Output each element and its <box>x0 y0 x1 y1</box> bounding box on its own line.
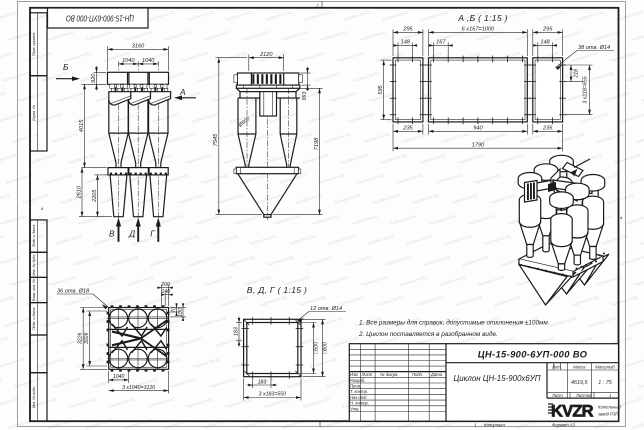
svg-text:kuzbass-inv.kz: kuzbass-inv.kz <box>445 233 472 246</box>
svg-text:Котельный: Котельный <box>598 405 621 410</box>
svg-text:kuzbass-inv.kz: kuzbass-inv.kz <box>265 9 292 22</box>
svg-text:kuzbass-inv.kz: kuzbass-inv.kz <box>429 213 456 226</box>
svg-text:kuzbass-inv.kz: kuzbass-inv.kz <box>439 274 466 287</box>
svg-text:kuzbass-inv.kz: kuzbass-inv.kz <box>215 335 242 348</box>
svg-text:4619,5: 4619,5 <box>571 380 588 386</box>
svg-text:kuzbass-inv.kz: kuzbass-inv.kz <box>69 396 96 409</box>
svg-text:kuzbass-inv.kz: kuzbass-inv.kz <box>47 29 74 42</box>
svg-text:kuzbass-inv.kz: kuzbass-inv.kz <box>451 192 478 205</box>
svg-text:kuzbass-inv.kz: kuzbass-inv.kz <box>86 29 113 42</box>
svg-text:kuzbass-inv.kz: kuzbass-inv.kz <box>246 131 273 144</box>
svg-text:3160: 3160 <box>132 44 145 50</box>
svg-text:kuzbass-inv.kz: kuzbass-inv.kz <box>108 396 135 409</box>
svg-text:7545: 7545 <box>213 133 219 146</box>
svg-text:2610: 2610 <box>76 185 82 199</box>
svg-text:kuzbass-inv.kz: kuzbass-inv.kz <box>320 29 347 42</box>
svg-text:Б: Б <box>63 62 69 72</box>
svg-text:kuzbass-inv.kz: kuzbass-inv.kz <box>365 0 392 1</box>
svg-text:kuzbass-inv.kz: kuzbass-inv.kz <box>560 0 587 1</box>
svg-text:kuzbass-inv.kz: kuzbass-inv.kz <box>640 233 644 246</box>
svg-text:kuzbass-inv.kz: kuzbass-inv.kz <box>250 233 277 246</box>
svg-text:kuzbass-inv.kz: kuzbass-inv.kz <box>406 233 433 246</box>
svg-text:200: 200 <box>160 282 170 288</box>
svg-text:kuzbass-inv.kz: kuzbass-inv.kz <box>55 233 82 246</box>
svg-text:kuzbass-inv.kz: kuzbass-inv.kz <box>168 131 195 144</box>
svg-text:kuzbass-inv.kz: kuzbass-inv.kz <box>357 172 384 185</box>
svg-text:kuzbass-inv.kz: kuzbass-inv.kz <box>164 29 191 42</box>
svg-text:kuzbass-inv.kz: kuzbass-inv.kz <box>581 111 608 124</box>
svg-text:295: 295 <box>402 27 413 33</box>
svg-text:kuzbass-inv.kz: kuzbass-inv.kz <box>304 9 331 22</box>
svg-text:kuzbass-inv.kz: kuzbass-inv.kz <box>361 274 388 287</box>
svg-text:kuzbass-inv.kz: kuzbass-inv.kz <box>203 417 230 430</box>
svg-text:kuzbass-inv.kz: kuzbass-inv.kz <box>82 315 109 328</box>
svg-text:kuzbass-inv.kz: kuzbass-inv.kz <box>207 131 234 144</box>
svg-text:kuzbass-inv.kz: kuzbass-inv.kz <box>195 213 222 226</box>
svg-text:kuzbass-inv.kz: kuzbass-inv.kz <box>0 294 14 307</box>
svg-text:4015: 4015 <box>79 119 85 132</box>
svg-text:kuzbass-inv.kz: kuzbass-inv.kz <box>359 29 386 42</box>
svg-text:kuzbass-inv.kz: kuzbass-inv.kz <box>363 131 390 144</box>
svg-text:2: 2 <box>316 4 319 8</box>
svg-text:920: 920 <box>91 73 97 83</box>
svg-text:kuzbass-inv.kz: kuzbass-inv.kz <box>0 396 18 409</box>
svg-text:kuzbass-inv.kz: kuzbass-inv.kz <box>172 233 199 246</box>
svg-text:kuzbass-inv.kz: kuzbass-inv.kz <box>287 0 314 1</box>
svg-text:kuzbass-inv.kz: kuzbass-inv.kz <box>380 152 407 165</box>
svg-text:Утв.: Утв. <box>350 406 360 411</box>
svg-text:kuzbass-inv.kz: kuzbass-inv.kz <box>468 213 495 226</box>
svg-text:kuzbass-inv.kz: kuzbass-inv.kz <box>572 294 599 307</box>
svg-text:kuzbass-inv.kz: kuzbass-inv.kz <box>166 274 193 287</box>
svg-text:kuzbass-inv.kz: kuzbass-inv.kz <box>0 9 19 22</box>
svg-text:kuzbass-inv.kz: kuzbass-inv.kz <box>29 152 56 165</box>
svg-text:kuzbass-inv.kz: kuzbass-inv.kz <box>65 294 92 307</box>
svg-text:А: А <box>179 87 186 97</box>
svg-text:завод РЗП: завод РЗП <box>597 412 619 417</box>
svg-text:kuzbass-inv.kz: kuzbass-inv.kz <box>435 172 462 185</box>
svg-text:kuzbass-inv.kz: kuzbass-inv.kz <box>607 192 634 205</box>
svg-text:kuzbass-inv.kz: kuzbass-inv.kz <box>193 356 220 369</box>
svg-text:kuzbass-inv.kz: kuzbass-inv.kz <box>22 192 49 205</box>
svg-text:kuzbass-inv.kz: kuzbass-inv.kz <box>558 131 585 144</box>
svg-text:kuzbass-inv.kz: kuzbass-inv.kz <box>133 233 160 246</box>
svg-text:kuzbass-inv.kz: kuzbass-inv.kz <box>638 376 644 389</box>
svg-text:kuzbass-inv.kz: kuzbass-inv.kz <box>0 356 25 369</box>
svg-text:kuzbass-inv.kz: kuzbass-inv.kz <box>203 29 230 42</box>
svg-text:kuzbass-inv.kz: kuzbass-inv.kz <box>603 90 630 103</box>
svg-text:kuzbass-inv.kz: kuzbass-inv.kz <box>0 111 23 124</box>
svg-text:1. Все размеры для справок, д: 1. Все размеры для справок, допустимые о… <box>359 319 550 327</box>
svg-text:kuzbass-inv.kz: kuzbass-inv.kz <box>201 172 228 185</box>
svg-text:kuzbass-inv.kz: kuzbass-inv.kz <box>12 131 39 144</box>
svg-text:Нач.отд: Нач.отд <box>350 395 367 400</box>
svg-text:1: 1 <box>609 393 611 398</box>
svg-text:kuzbass-inv.kz: kuzbass-inv.kz <box>538 9 565 22</box>
svg-text:kuzbass-inv.kz: kuzbass-inv.kz <box>373 192 400 205</box>
svg-text:Д: Д <box>128 229 135 239</box>
svg-text:kuzbass-inv.kz: kuzbass-inv.kz <box>248 0 275 1</box>
svg-text:kuzbass-inv.kz: kuzbass-inv.kz <box>18 90 45 103</box>
svg-text:kuzbass-inv.kz: kuzbass-inv.kz <box>419 152 446 165</box>
svg-text:140: 140 <box>161 289 170 295</box>
svg-text:kuzbass-inv.kz: kuzbass-inv.kz <box>199 315 226 328</box>
svg-text:1: 1 <box>474 422 476 427</box>
svg-text:А: А <box>40 207 44 211</box>
svg-text:kuzbass-inv.kz: kuzbass-inv.kz <box>242 417 269 430</box>
svg-text:kuzbass-inv.kz: kuzbass-inv.kz <box>147 396 174 409</box>
svg-text:Н. контр.: Н. контр. <box>350 401 369 406</box>
svg-text:1 : 75: 1 : 75 <box>598 380 612 386</box>
svg-text:kuzbass-inv.kz: kuzbass-inv.kz <box>68 152 95 165</box>
svg-text:kuzbass-inv.kz: kuzbass-inv.kz <box>589 315 616 328</box>
svg-text:kuzbass-inv.kz: kuzbass-inv.kz <box>174 90 201 103</box>
svg-text:kuzbass-inv.kz: kuzbass-inv.kz <box>14 376 41 389</box>
svg-text:kuzbass-inv.kz: kuzbass-inv.kz <box>593 29 620 42</box>
svg-text:kuzbass-inv.kz: kuzbass-inv.kz <box>170 0 197 1</box>
svg-text:kuzbass-inv.kz: kuzbass-inv.kz <box>632 29 644 42</box>
svg-text:kuzbass-inv.kz: kuzbass-inv.kz <box>610 50 637 63</box>
svg-text:kuzbass-inv.kz: kuzbass-inv.kz <box>337 50 364 63</box>
svg-text:kuzbass-inv.kz: kuzbass-inv.kz <box>616 9 643 22</box>
svg-text:kuzbass-inv.kz: kuzbass-inv.kz <box>384 254 411 267</box>
svg-text:kuzbass-inv.kz: kuzbass-inv.kz <box>0 90 6 103</box>
svg-text:kuzbass-inv.kz: kuzbass-inv.kz <box>462 254 489 267</box>
svg-text:kuzbass-inv.kz: kuzbass-inv.kz <box>0 213 27 226</box>
svg-text:kuzbass-inv.kz: kuzbass-inv.kz <box>260 294 287 307</box>
svg-text:kuzbass-inv.kz: kuzbass-inv.kz <box>455 294 482 307</box>
svg-text:kuzbass-inv.kz: kuzbass-inv.kz <box>490 192 517 205</box>
svg-text:kuzbass-inv.kz: kuzbass-inv.kz <box>176 335 203 348</box>
svg-text:kuzbass-inv.kz: kuzbass-inv.kz <box>330 90 357 103</box>
svg-text:kuzbass-inv.kz: kuzbass-inv.kz <box>416 294 443 307</box>
svg-text:В, Д, Г ( 1:15 ): В, Д, Г ( 1:15 ) <box>247 285 307 295</box>
svg-text:183: 183 <box>233 327 239 336</box>
svg-text:kuzbass-inv.kz: kuzbass-inv.kz <box>35 111 62 124</box>
svg-text:kuzbass-inv.kz: kuzbass-inv.kz <box>632 417 644 430</box>
svg-text:1790: 1790 <box>472 142 485 148</box>
svg-text:kuzbass-inv.kz: kuzbass-inv.kz <box>209 0 236 1</box>
svg-text:kuzbass-inv.kz: kuzbass-inv.kz <box>601 233 628 246</box>
svg-text:Подп. и дата: Подп. и дата <box>32 308 36 331</box>
svg-text:kuzbass-inv.kz: kuzbass-inv.kz <box>478 274 505 287</box>
svg-text:kuzbass-inv.kz: kuzbass-inv.kz <box>636 131 644 144</box>
svg-text:А: А <box>619 216 623 220</box>
svg-text:940: 940 <box>473 126 483 132</box>
svg-text:kuzbass-inv.kz: kuzbass-inv.kz <box>599 0 626 1</box>
svg-text:kuzbass-inv.kz: kuzbass-inv.kz <box>242 29 269 42</box>
svg-text:3 x218=655: 3 x218=655 <box>583 76 589 103</box>
svg-text:kuzbass-inv.kz: kuzbass-inv.kz <box>575 152 602 165</box>
svg-text:kuzbass-inv.kz: kuzbass-inv.kz <box>191 111 218 124</box>
svg-text:kuzbass-inv.kz: kuzbass-inv.kz <box>334 192 361 205</box>
svg-text:kuzbass-inv.kz: kuzbass-inv.kz <box>482 0 509 1</box>
svg-text:kuzbass-inv.kz: kuzbass-inv.kz <box>306 254 333 267</box>
svg-text:1040: 1040 <box>122 58 135 64</box>
svg-text:kuzbass-inv.kz: kuzbass-inv.kz <box>412 192 439 205</box>
svg-text:Лист: Лист <box>361 372 373 377</box>
svg-text:Перв. примен.: Перв. примен. <box>32 32 36 56</box>
svg-text:kuzbass-inv.kz: kuzbass-inv.kz <box>377 294 404 307</box>
svg-text:kuzbass-inv.kz: kuzbass-inv.kz <box>626 70 644 83</box>
svg-text:ЦН-15-900-6УП-000 ВО: ЦН-15-900-6УП-000 ВО <box>66 14 134 24</box>
svg-text:kuzbass-inv.kz: kuzbass-inv.kz <box>164 417 191 430</box>
svg-text:kuzbass-inv.kz: kuzbass-inv.kz <box>281 417 308 430</box>
svg-text:kuzbass-inv.kz: kuzbass-inv.kz <box>404 0 431 1</box>
svg-text:kuzbass-inv.kz: kuzbass-inv.kz <box>267 254 294 267</box>
svg-text:kuzbass-inv.kz: kuzbass-inv.kz <box>25 50 52 63</box>
svg-text:А ,Б ( 1:15 ): А ,Б ( 1:15 ) <box>457 13 508 23</box>
svg-text:kuzbass-inv.kz: kuzbass-inv.kz <box>61 192 88 205</box>
svg-text:kuzbass-inv.kz: kuzbass-inv.kz <box>638 0 644 1</box>
svg-text:kuzbass-inv.kz: kuzbass-inv.kz <box>256 192 283 205</box>
svg-text:kuzbass-inv.kz: kuzbass-inv.kz <box>324 131 351 144</box>
svg-text:kuzbass-inv.kz: kuzbass-inv.kz <box>577 9 604 22</box>
svg-text:218: 218 <box>574 69 580 79</box>
svg-text:kuzbass-inv.kz: kuzbass-inv.kz <box>209 376 236 389</box>
svg-text:Инв. № дубл.: Инв. № дубл. <box>32 254 36 276</box>
svg-text:235: 235 <box>402 126 413 132</box>
svg-text:kuzbass-inv.kz: kuzbass-inv.kz <box>328 233 355 246</box>
svg-text:Изм: Изм <box>350 372 358 377</box>
svg-text:kuzbass-inv.kz: kuzbass-inv.kz <box>146 152 173 165</box>
svg-text:100: 100 <box>178 308 184 317</box>
svg-text:kuzbass-inv.kz: kuzbass-inv.kz <box>20 335 47 348</box>
svg-text:kuzbass-inv.kz: kuzbass-inv.kz <box>314 70 341 83</box>
svg-text:kuzbass-inv.kz: kuzbass-inv.kz <box>402 131 429 144</box>
svg-text:kuzbass-inv.kz: kuzbass-inv.kz <box>287 376 314 389</box>
svg-text:kuzbass-inv.kz: kuzbass-inv.kz <box>320 417 347 430</box>
svg-text:□500: □500 <box>313 342 319 354</box>
svg-text:kuzbass-inv.kz: kuzbass-inv.kz <box>347 111 374 124</box>
svg-text:kuzbass-inv.kz: kuzbass-inv.kz <box>51 131 78 144</box>
svg-text:3 х183=550: 3 х183=550 <box>259 392 286 398</box>
svg-text:3026: 3026 <box>84 333 90 345</box>
svg-text:kuzbass-inv.kz: kuzbass-inv.kz <box>125 417 152 430</box>
svg-text:kuzbass-inv.kz: kuzbass-inv.kz <box>289 233 316 246</box>
svg-text:№ докум.: № докум. <box>380 372 398 377</box>
svg-text:kuzbass-inv.kz: kuzbass-inv.kz <box>178 192 205 205</box>
svg-text:Масса: Масса <box>573 364 586 369</box>
svg-text:kuzbass-inv.kz: kuzbass-inv.kz <box>170 376 197 389</box>
svg-text:7198: 7198 <box>314 137 320 150</box>
svg-text:Циклон ЦН-15-900х6УП: Циклон ЦН-15-900х6УП <box>454 374 541 383</box>
svg-text:kuzbass-inv.kz: kuzbass-inv.kz <box>443 0 470 1</box>
svg-text:kuzbass-inv.kz: kuzbass-inv.kz <box>88 274 115 287</box>
svg-text:kuzbass-inv.kz: kuzbass-inv.kz <box>0 192 10 205</box>
svg-text:ЦН-15-900-6УП-000 ВО: ЦН-15-900-6УП-000 ВО <box>478 349 588 360</box>
svg-text:kuzbass-inv.kz: kuzbass-inv.kz <box>310 356 337 369</box>
svg-text:kuzbass-inv.kz: kuzbass-inv.kz <box>234 213 261 226</box>
svg-text:2205: 2205 <box>92 189 98 203</box>
svg-text:kuzbass-inv.kz: kuzbass-inv.kz <box>353 70 380 83</box>
svg-text:kuzbass-inv.kz: kuzbass-inv.kz <box>618 254 644 267</box>
svg-text:kuzbass-inv.kz: kuzbass-inv.kz <box>611 294 638 307</box>
svg-text:kuzbass-inv.kz: kuzbass-inv.kz <box>326 0 353 1</box>
svg-text:kuzbass-inv.kz: kuzbass-inv.kz <box>303 396 330 409</box>
svg-text:36 отв. Ø18: 36 отв. Ø18 <box>57 289 90 295</box>
svg-text:kuzbass-inv.kz: kuzbass-inv.kz <box>100 192 127 205</box>
svg-text:kuzbass-inv.kz: kuzbass-inv.kz <box>152 111 179 124</box>
svg-text:kuzbass-inv.kz: kuzbass-inv.kz <box>0 50 13 63</box>
svg-text:Справ. №: Справ. № <box>32 105 36 121</box>
svg-text:kuzbass-inv.kz: kuzbass-inv.kz <box>312 213 339 226</box>
svg-text:2. Циклон поставляется в разо: 2. Циклон поставляется в разобранном вид… <box>358 330 498 338</box>
svg-text:kuzbass-inv.kz: kuzbass-inv.kz <box>634 274 644 287</box>
svg-text:3226: 3226 <box>78 333 84 345</box>
svg-text:kuzbass-inv.kz: kuzbass-inv.kz <box>14 0 41 1</box>
svg-text:kuzbass-inv.kz: kuzbass-inv.kz <box>117 213 144 226</box>
svg-text:kuzbass-inv.kz: kuzbass-inv.kz <box>111 254 138 267</box>
svg-text:kuzbass-inv.kz: kuzbass-inv.kz <box>182 294 209 307</box>
svg-text:kuzbass-inv.kz: kuzbass-inv.kz <box>396 172 423 185</box>
svg-text:kuzbass-inv.kz: kuzbass-inv.kz <box>217 192 244 205</box>
svg-text:993: 993 <box>302 92 308 101</box>
svg-text:kuzbass-inv.kz: kuzbass-inv.kz <box>421 9 448 22</box>
svg-text:kuzbass-inv.kz: kuzbass-inv.kz <box>213 90 240 103</box>
svg-text:kuzbass-inv.kz: kuzbass-inv.kz <box>318 172 345 185</box>
svg-text:Взам. инв. №: Взам. инв. № <box>32 279 36 301</box>
svg-text:kuzbass-inv.kz: kuzbass-inv.kz <box>205 274 232 287</box>
svg-text:kuzbass-inv.kz: kuzbass-inv.kz <box>2 70 29 83</box>
svg-text:Подп.: Подп. <box>412 372 423 377</box>
svg-text:kuzbass-inv.kz: kuzbass-inv.kz <box>343 9 370 22</box>
svg-text:kuzbass-inv.kz: kuzbass-inv.kz <box>298 50 325 63</box>
svg-text:kuzbass-inv.kz: kuzbass-inv.kz <box>628 315 644 328</box>
svg-text:kuzbass-inv.kz: kuzbass-inv.kz <box>0 0 2 1</box>
svg-text:kuzbass-inv.kz: kuzbass-inv.kz <box>474 172 501 185</box>
svg-text:kuzbass-inv.kz: kuzbass-inv.kz <box>620 111 644 124</box>
svg-text:kuzbass-inv.kz: kuzbass-inv.kz <box>494 294 521 307</box>
svg-text:kuzbass-inv.kz: kuzbass-inv.kz <box>131 0 158 1</box>
svg-text:kuzbass-inv.kz: kuzbass-inv.kz <box>86 417 113 430</box>
svg-text:kuzbass-inv.kz: kuzbass-inv.kz <box>400 274 427 287</box>
svg-text:kuzbass-inv.kz: kuzbass-inv.kz <box>211 233 238 246</box>
svg-text:kuzbass-inv.kz: kuzbass-inv.kz <box>484 233 511 246</box>
svg-text:235: 235 <box>542 126 553 132</box>
svg-text:kuzbass-inv.kz: kuzbass-inv.kz <box>264 396 291 409</box>
svg-text:kuzbass-inv.kz: kuzbass-inv.kz <box>53 0 80 1</box>
svg-text:kuzbass-inv.kz: kuzbass-inv.kz <box>47 417 74 430</box>
svg-text:kuzbass-inv.kz: kuzbass-inv.kz <box>49 274 76 287</box>
svg-text:kuzbass-inv.kz: kuzbass-inv.kz <box>0 254 21 267</box>
svg-text:kuzbass-inv.kz: kuzbass-inv.kz <box>441 131 468 144</box>
svg-text:kuzbass-inv.kz: kuzbass-inv.kz <box>458 152 485 165</box>
svg-text:38 отв. Ø14: 38 отв. Ø14 <box>578 45 610 51</box>
svg-text:Т. контр.: Т. контр. <box>350 389 368 394</box>
svg-text:Инв. № подл.: Инв. № подл. <box>32 386 36 408</box>
svg-text:kuzbass-inv.kz: kuzbass-inv.kz <box>322 274 349 287</box>
svg-text:kuzbass-inv.kz: kuzbass-inv.kz <box>351 213 378 226</box>
svg-text:kuzbass-inv.kz: kuzbass-inv.kz <box>390 213 417 226</box>
svg-text:295: 295 <box>542 27 553 33</box>
svg-text:kuzbass-inv.kz: kuzbass-inv.kz <box>0 233 4 246</box>
svg-text:kuzbass-inv.kz: kuzbass-inv.kz <box>382 9 409 22</box>
svg-text:kuzbass-inv.kz: kuzbass-inv.kz <box>295 192 322 205</box>
svg-text:1040: 1040 <box>113 374 125 380</box>
svg-text:kuzbass-inv.kz: kuzbass-inv.kz <box>104 294 131 307</box>
svg-text:В: В <box>109 229 115 239</box>
svg-text:Листов: Листов <box>575 393 592 398</box>
svg-text:kuzbass-inv.kz: kuzbass-inv.kz <box>187 9 214 22</box>
svg-text:kuzbass-inv.kz: kuzbass-inv.kz <box>94 233 121 246</box>
svg-text:kuzbass-inv.kz: kuzbass-inv.kz <box>341 152 368 165</box>
svg-text:1040: 1040 <box>142 58 155 64</box>
svg-text:kuzbass-inv.kz: kuzbass-inv.kz <box>587 70 614 83</box>
svg-text:kuzbass-inv.kz: kuzbass-inv.kz <box>127 274 154 287</box>
svg-text:70: 70 <box>171 307 177 313</box>
svg-text:kuzbass-inv.kz: kuzbass-inv.kz <box>228 254 255 267</box>
svg-text:KVZR: KVZR <box>551 403 594 421</box>
svg-text:6 x167=1000: 6 x167=1000 <box>462 27 495 33</box>
svg-text:kuzbass-inv.kz: kuzbass-inv.kz <box>515 29 542 42</box>
svg-text:kuzbass-inv.kz: kuzbass-inv.kz <box>221 294 248 307</box>
svg-text:kuzbass-inv.kz: kuzbass-inv.kz <box>550 315 577 328</box>
svg-text:595: 595 <box>378 84 384 94</box>
svg-text:kuzbass-inv.kz: kuzbass-inv.kz <box>521 0 548 1</box>
svg-text:183: 183 <box>258 379 267 385</box>
svg-text:2120: 2120 <box>259 52 273 58</box>
svg-text:148: 148 <box>401 40 411 46</box>
svg-text:kuzbass-inv.kz: kuzbass-inv.kz <box>37 356 64 369</box>
svg-text:Дата: Дата <box>430 372 443 377</box>
svg-text:Копировал: Копировал <box>484 422 505 427</box>
svg-text:kuzbass-inv.kz: kuzbass-inv.kz <box>197 70 224 83</box>
svg-text:kuzbass-inv.kz: kuzbass-inv.kz <box>150 254 177 267</box>
svg-text:kuzbass-inv.kz: kuzbass-inv.kz <box>189 254 216 267</box>
svg-text:kuzbass-inv.kz: kuzbass-inv.kz <box>45 172 72 185</box>
svg-text:□600: □600 <box>322 342 328 354</box>
svg-text:kuzbass-inv.kz: kuzbass-inv.kz <box>367 233 394 246</box>
svg-text:Разраб.: Разраб. <box>350 378 365 383</box>
svg-text:kuzbass-inv.kz: kuzbass-inv.kz <box>0 335 8 348</box>
svg-text:12 отв. Ø14: 12 отв. Ø14 <box>310 306 342 312</box>
svg-text:kuzbass-inv.kz: kuzbass-inv.kz <box>285 131 312 144</box>
svg-text:kuzbass-inv.kz: kuzbass-inv.kz <box>92 0 119 1</box>
svg-text:kuzbass-inv.kz: kuzbass-inv.kz <box>316 315 343 328</box>
svg-text:3 х1040=3120: 3 х1040=3120 <box>122 385 155 391</box>
svg-text:kuzbass-inv.kz: kuzbass-inv.kz <box>345 254 372 267</box>
svg-text:kuzbass-inv.kz: kuzbass-inv.kz <box>624 213 644 226</box>
svg-text:kuzbass-inv.kz: kuzbass-inv.kz <box>423 254 450 267</box>
svg-text:kuzbass-inv.kz: kuzbass-inv.kz <box>226 9 253 22</box>
svg-text:148: 148 <box>540 40 550 46</box>
svg-text:kuzbass-inv.kz: kuzbass-inv.kz <box>8 417 35 430</box>
svg-text:Подп. и дата: Подп. и дата <box>32 225 36 248</box>
svg-text:kuzbass-inv.kz: kuzbass-inv.kz <box>53 376 80 389</box>
svg-text:kuzbass-inv.kz: kuzbass-inv.kz <box>0 376 2 389</box>
svg-text:kuzbass-inv.kz: kuzbass-inv.kz <box>185 152 212 165</box>
svg-text:kuzbass-inv.kz: kuzbass-inv.kz <box>308 111 335 124</box>
svg-text:Масштаб: Масштаб <box>595 364 615 369</box>
svg-text:kuzbass-inv.kz: kuzbass-inv.kz <box>597 131 624 144</box>
svg-text:kuzbass-inv.kz: kuzbass-inv.kz <box>186 396 213 409</box>
svg-text:kuzbass-inv.kz: kuzbass-inv.kz <box>72 254 99 267</box>
svg-text:kuzbass-inv.kz: kuzbass-inv.kz <box>630 172 644 185</box>
svg-text:kuzbass-inv.kz: kuzbass-inv.kz <box>302 152 329 165</box>
svg-text:kuzbass-inv.kz: kuzbass-inv.kz <box>57 90 84 103</box>
svg-text:kuzbass-inv.kz: kuzbass-inv.kz <box>125 29 152 42</box>
svg-text:kuzbass-inv.kz: kuzbass-inv.kz <box>0 152 17 165</box>
svg-text:Лист: Лист <box>551 393 563 398</box>
svg-text:kuzbass-inv.kz: kuzbass-inv.kz <box>181 50 208 63</box>
svg-text:kuzbass-inv.kz: kuzbass-inv.kz <box>281 29 308 42</box>
svg-text:167: 167 <box>436 40 446 46</box>
svg-text:Формат А3: Формат А3 <box>552 422 576 427</box>
svg-text:kuzbass-inv.kz: kuzbass-inv.kz <box>497 152 524 165</box>
svg-text:Пров.: Пров. <box>350 384 361 389</box>
svg-text:kuzbass-inv.kz: kuzbass-inv.kz <box>113 111 140 124</box>
